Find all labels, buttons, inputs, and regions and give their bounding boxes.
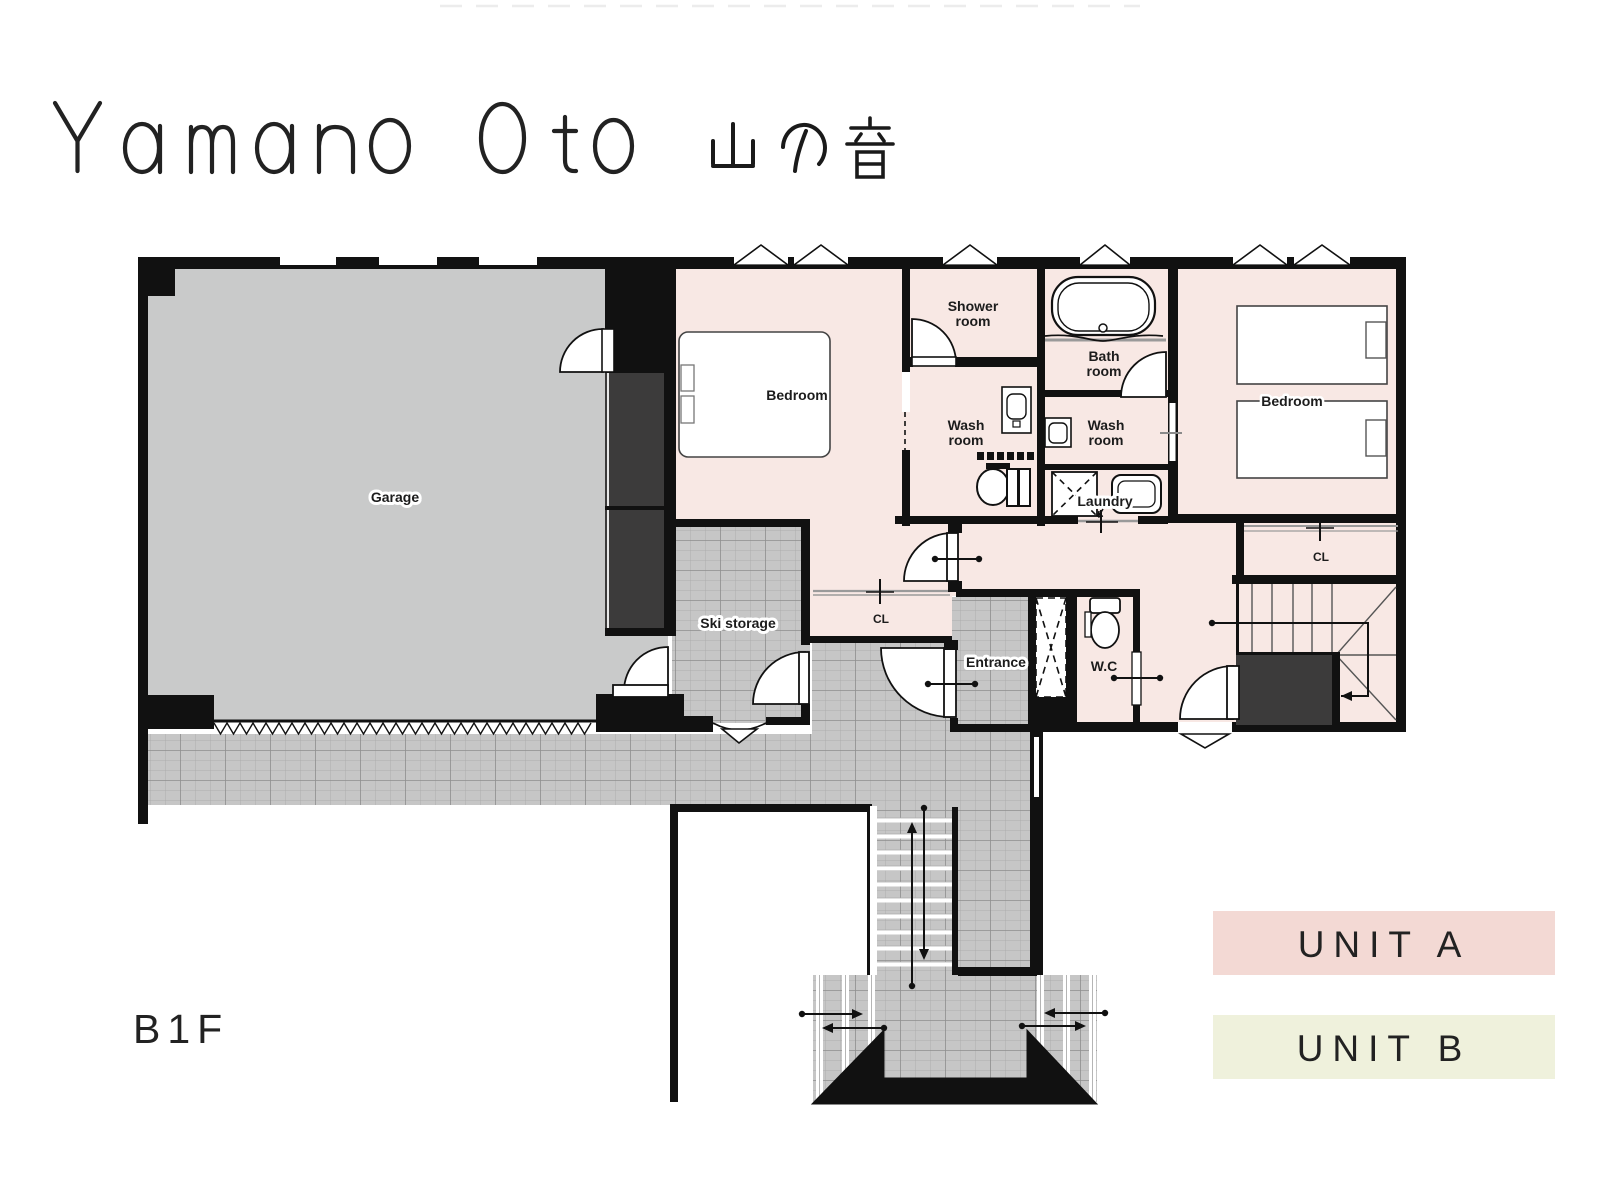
svg-text:Garage: Garage bbox=[371, 489, 419, 505]
svg-text:room: room bbox=[1087, 363, 1122, 379]
svg-text:Entrance: Entrance bbox=[966, 654, 1026, 670]
svg-text:Wash: Wash bbox=[948, 417, 985, 433]
svg-text:Bedroom: Bedroom bbox=[1261, 393, 1322, 409]
svg-text:room: room bbox=[956, 313, 991, 329]
svg-text:Ski storage: Ski storage bbox=[700, 615, 776, 631]
svg-text:UNIT A: UNIT A bbox=[1298, 924, 1471, 965]
svg-text:Laundry: Laundry bbox=[1077, 493, 1132, 509]
svg-text:CL: CL bbox=[873, 612, 889, 626]
svg-text:CL: CL bbox=[1313, 550, 1329, 564]
svg-text:room: room bbox=[1089, 432, 1124, 448]
svg-text:UNIT B: UNIT B bbox=[1297, 1028, 1472, 1069]
svg-text:room: room bbox=[949, 432, 984, 448]
svg-text:Bedroom: Bedroom bbox=[766, 387, 827, 403]
svg-text:Wash: Wash bbox=[1088, 417, 1125, 433]
svg-text:B1F: B1F bbox=[133, 1006, 229, 1052]
svg-text:Shower: Shower bbox=[948, 298, 999, 314]
svg-text:W.C: W.C bbox=[1091, 658, 1117, 674]
svg-text:Bath: Bath bbox=[1088, 348, 1119, 364]
